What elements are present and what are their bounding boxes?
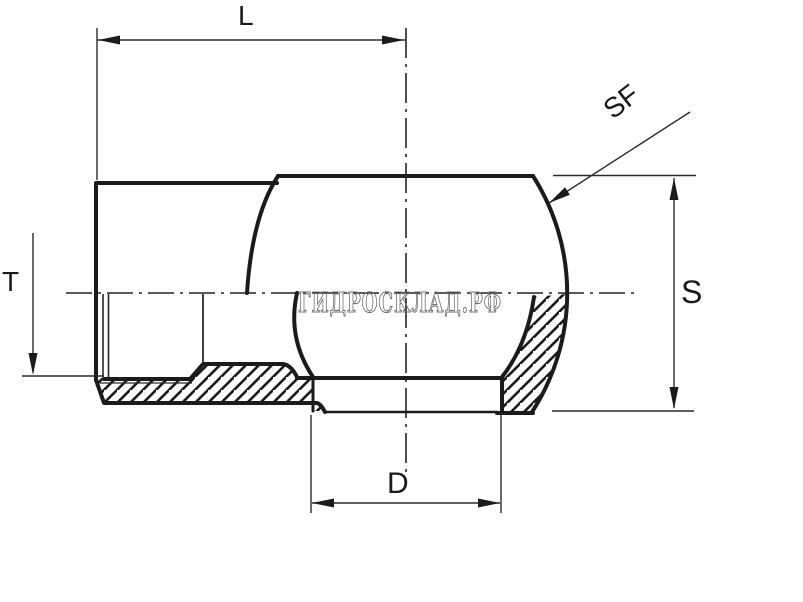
thin-feature-lines — [100, 294, 203, 383]
technical-drawing: L T S D SF ГИДРОСКЛАД.РФ — [0, 0, 803, 602]
dimension-lines — [22, 28, 696, 513]
dimension-label-L: L — [238, 0, 254, 31]
L-arrow-right — [382, 36, 404, 45]
S-arrow-up — [670, 178, 679, 200]
watermark-text: ГИДРОСКЛАД.РФ — [298, 288, 502, 319]
D-arrow-right — [478, 499, 500, 508]
dimension-label-S: S — [681, 274, 702, 310]
centerlines — [66, 28, 634, 472]
dimension-arrowheads — [29, 36, 679, 508]
dimension-label-SF: SF — [598, 78, 645, 124]
L-arrow-left — [98, 36, 120, 45]
S-arrow-down — [670, 387, 679, 409]
drawing-canvas: L T S D SF ГИДРОСКЛАД.РФ — [0, 0, 803, 602]
dimension-label-D: D — [387, 467, 409, 500]
dome-wall-section-hatch — [502, 294, 566, 412]
D-arrow-left — [312, 499, 334, 508]
hex-flat-boundary-curve-upper — [247, 176, 278, 293]
SF-leader-line — [549, 112, 690, 203]
dimension-labels: L T S D SF — [2, 0, 702, 500]
SF-leader-arrow — [549, 187, 570, 203]
T-arrow-down — [29, 353, 38, 375]
dimension-label-T: T — [2, 266, 19, 297]
